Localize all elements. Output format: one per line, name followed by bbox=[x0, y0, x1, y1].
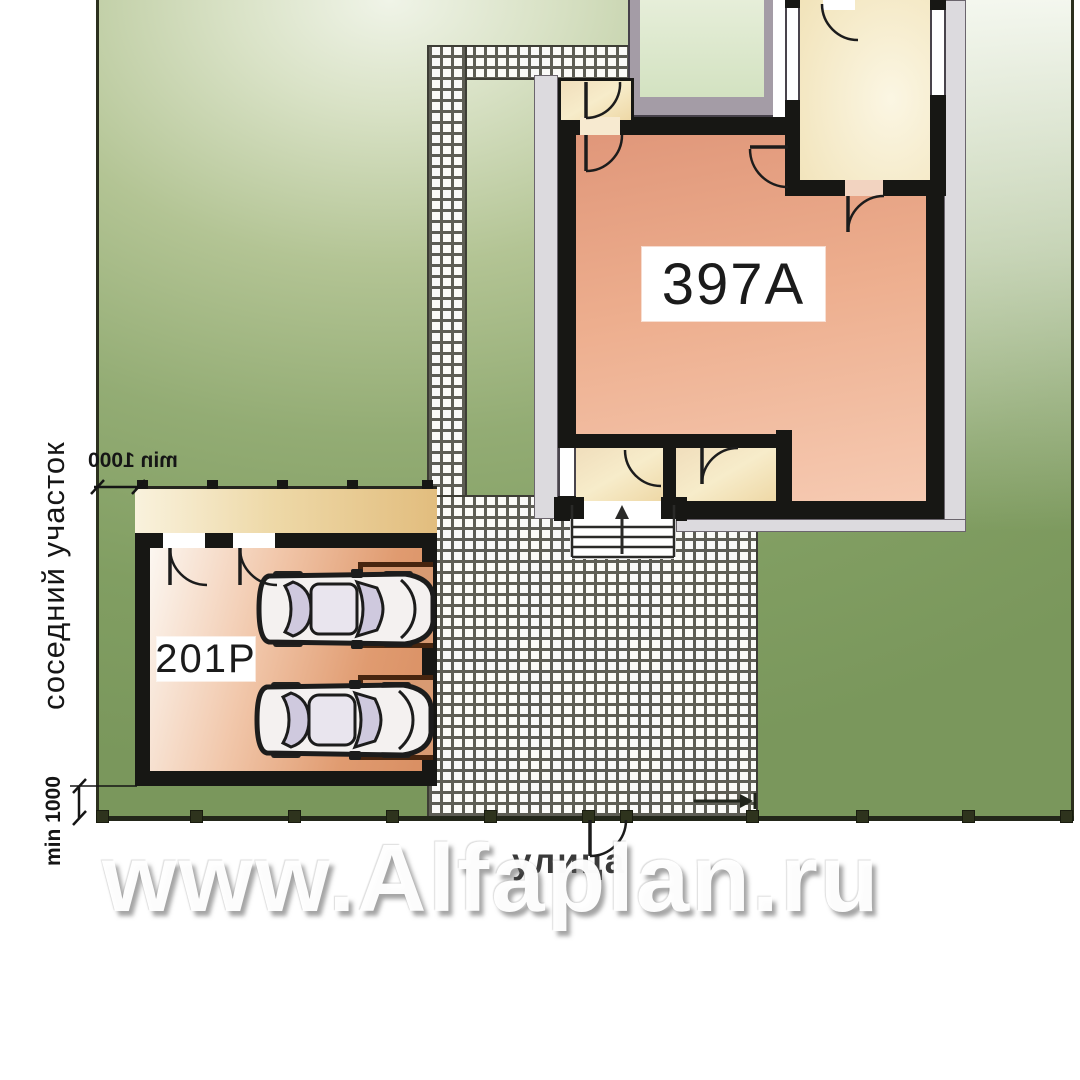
watermark: www.Alfaplan.ru bbox=[102, 824, 881, 934]
fence-post bbox=[1060, 810, 1073, 823]
fence-post bbox=[96, 810, 109, 823]
fence-post bbox=[746, 810, 759, 823]
garage-label-text: 201P bbox=[155, 637, 256, 682]
veranda-door-opening bbox=[823, 0, 855, 10]
veranda-window-right bbox=[930, 10, 946, 95]
fence-post bbox=[190, 810, 203, 823]
hallway-top-wall bbox=[576, 434, 776, 448]
plot-boundary-left bbox=[96, 0, 99, 820]
setback-dim-top: min 1000 bbox=[88, 449, 178, 473]
setback-dim-bottom: min 1000 bbox=[42, 736, 66, 866]
house-label: 397A bbox=[642, 247, 825, 321]
porch-door-opening bbox=[582, 501, 663, 519]
car-1 bbox=[253, 569, 437, 649]
porch-column-left bbox=[554, 497, 584, 521]
hallway-right-wall bbox=[776, 430, 792, 501]
window-left-wall bbox=[558, 448, 576, 496]
neighbor-plot-label-text: соседний участок bbox=[36, 441, 71, 710]
car-mirror bbox=[351, 569, 363, 578]
path-vertical bbox=[427, 45, 467, 507]
veranda-window-left bbox=[785, 8, 800, 100]
lawn-light-strip bbox=[966, 0, 1072, 560]
fence-post bbox=[962, 810, 975, 823]
car-roof bbox=[309, 695, 355, 745]
fence-post bbox=[288, 810, 301, 823]
veranda-room bbox=[800, 0, 930, 180]
veranda-exit-opening bbox=[845, 180, 883, 196]
fence-post bbox=[484, 810, 497, 823]
fence-gate-post bbox=[620, 810, 633, 823]
watermark-text: www.Alfaplan.ru bbox=[102, 825, 881, 932]
pergola-canopy bbox=[135, 489, 437, 533]
car-2 bbox=[251, 680, 435, 760]
neighbor-plot-label: соседний участок bbox=[36, 440, 72, 710]
hallway-room-1 bbox=[576, 448, 663, 501]
car-mirror bbox=[351, 640, 363, 649]
entry-vestibule bbox=[558, 78, 634, 120]
garage-side-door-opening-1 bbox=[163, 533, 205, 548]
garage-label: 201P bbox=[157, 637, 255, 681]
house-eaves-left bbox=[534, 75, 558, 519]
hallway-room-2 bbox=[676, 448, 776, 501]
dim-tick bbox=[73, 779, 86, 793]
car-roof bbox=[311, 584, 357, 634]
hallway-partition bbox=[663, 448, 676, 501]
dim-tick bbox=[73, 811, 86, 825]
setback-dim-bottom-text: min 1000 bbox=[42, 776, 65, 866]
porch-steps-deck bbox=[570, 519, 676, 559]
garage-side-door-opening-2 bbox=[233, 533, 275, 548]
car-mirror bbox=[349, 680, 361, 689]
porch-column-right bbox=[661, 497, 687, 521]
terrace-room bbox=[640, 0, 764, 97]
house-label-text: 397A bbox=[662, 251, 805, 318]
setback-dim-top-text: min 1000 bbox=[88, 449, 178, 472]
vestibule-door-opening bbox=[580, 117, 620, 135]
fence-gate-post bbox=[582, 810, 595, 823]
site-plan: 397A 201P bbox=[0, 0, 1080, 1080]
car-mirror bbox=[349, 751, 361, 760]
plot-boundary-right bbox=[1071, 0, 1074, 820]
house-eaves-right bbox=[944, 0, 966, 530]
terrace-veranda-gap bbox=[773, 0, 785, 117]
fence-post bbox=[856, 810, 869, 823]
house-eaves-bottom bbox=[676, 519, 966, 532]
fence-post bbox=[386, 810, 399, 823]
